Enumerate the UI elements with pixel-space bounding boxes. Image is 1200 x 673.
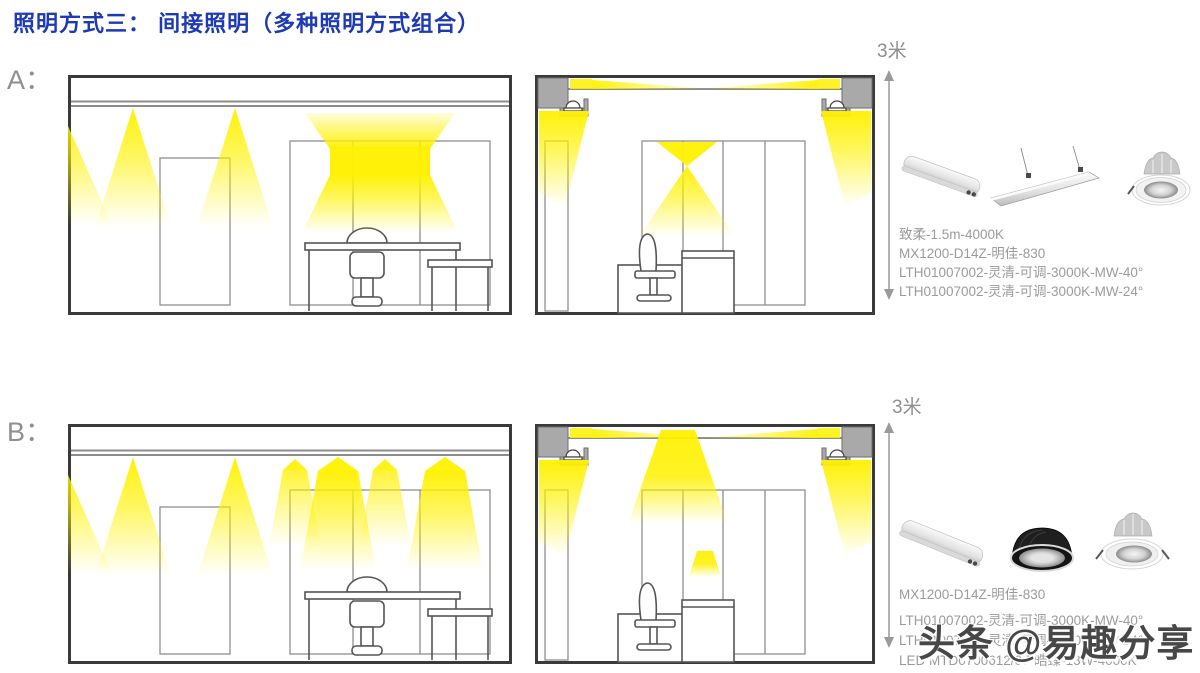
room-diagram-a-right [535,75,875,315]
room-diagram-a-left [68,75,512,315]
tube-light-image-b [893,512,991,584]
slide: 照明方式三： 间接照明（多种照明方式组合） A： [0,0,1200,673]
product-line: MX1200-D14Z-明佳-830 [899,585,1143,605]
product-line: 致柔-1.5m-4000K [899,225,1143,244]
downlight-white-image-a [1120,150,1200,218]
panel-light-image-a [985,146,1105,216]
product-line: LTH01007002-灵清-可调-3000K-MW-24° [899,282,1143,301]
product-line: MX1200-D14Z-明佳-830 [899,244,1143,263]
height-label-b: 3米 [892,392,922,419]
section-b-label: B： [7,410,52,449]
downlight-black-image-b [998,516,1086,582]
room-diagram-b-right [535,424,875,664]
product-line: LTH01007002-灵清-可调-3000K-MW-40° [899,263,1143,282]
section-a-label: A： [7,58,52,97]
height-arrow-a [880,68,898,302]
room-diagram-b-left [68,424,512,664]
height-label-a: 3米 [877,36,907,63]
downlight-white-image-b [1088,510,1174,580]
tube-light-image-a [898,150,988,216]
watermark-text: 头条 @易趣分享 [918,613,1194,667]
product-list-a: 致柔-1.5m-4000K MX1200-D14Z-明佳-830 LTH0100… [899,225,1143,301]
page-title: 照明方式三： 间接照明（多种照明方式组合） [13,6,480,38]
